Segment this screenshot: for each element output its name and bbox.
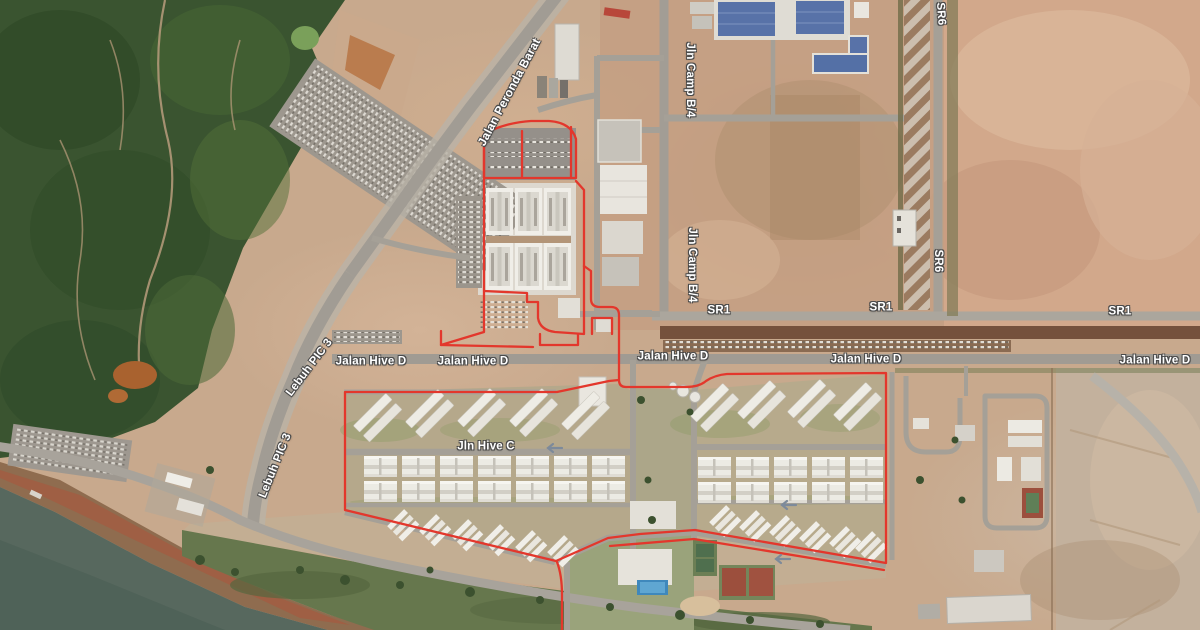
road-label-sr1-right: SR1 xyxy=(1109,306,1132,318)
road-label-sr1-left: SR1 xyxy=(708,305,731,317)
construction-strip xyxy=(898,0,958,316)
road-label-jalan-hive-d-2: Jalan Hive D xyxy=(438,356,509,368)
road-label-jalan-hive-d-4: Jalan Hive D xyxy=(831,354,902,366)
road-label-jalan-hive-d-1: Jalan Hive D xyxy=(336,356,407,368)
roadside-vehicle-strip xyxy=(660,326,1200,352)
map-canvas xyxy=(0,0,1200,630)
road-label-jln-camp-b4-upper: Jln Camp B/4 xyxy=(683,42,695,117)
road-label-sr1-mid: SR1 xyxy=(870,302,893,314)
checkpoint xyxy=(145,463,216,527)
road-label-jalan-hive-d-5: Jalan Hive D xyxy=(1120,355,1191,367)
road-label-jalan-hive-d-3: Jalan Hive D xyxy=(638,351,709,363)
road-label-sr6-mid: SR6 xyxy=(931,250,943,273)
satellite-map[interactable]: Jalan Peronda Barat Lebuh PIC 3 Lebuh PI… xyxy=(0,0,1200,630)
road-label-jln-hive-c: Jln Hive C xyxy=(457,441,515,453)
road-label-jln-camp-b4-lower: Jln Camp B/4 xyxy=(685,227,697,302)
road-label-sr6-top: SR6 xyxy=(933,2,946,26)
bottom-right-camp xyxy=(913,418,1043,623)
